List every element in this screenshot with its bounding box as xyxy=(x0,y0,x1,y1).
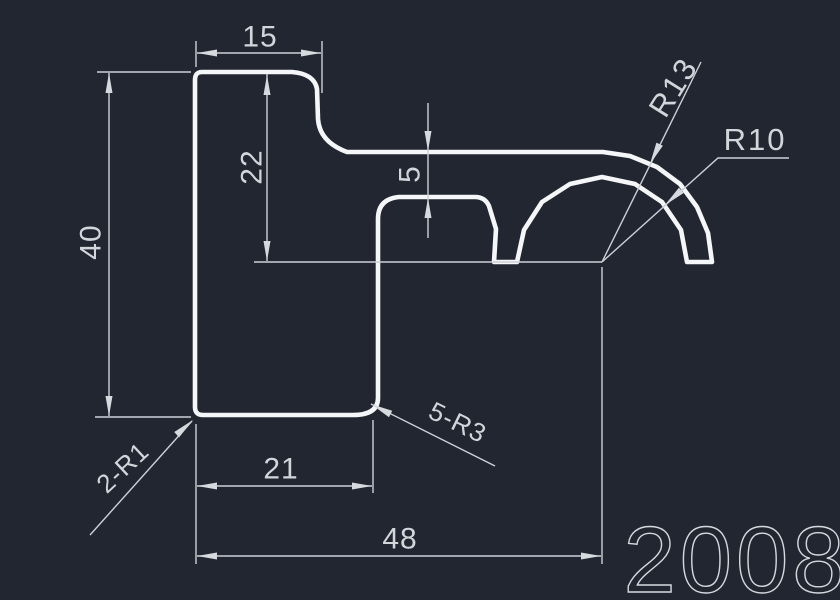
cad-viewport: 15 40 22 5 21 48 xyxy=(0,0,840,600)
dim-label-overall-height: 40 xyxy=(75,224,108,259)
part-number: 2008 xyxy=(623,507,840,600)
dim-label-top-width: 15 xyxy=(242,21,277,54)
dim-label-overall-width: 48 xyxy=(382,523,417,556)
dim-label-base-width: 21 xyxy=(263,453,298,486)
radius-label-r10: R10 xyxy=(724,122,787,157)
dim-label-upper-height: 22 xyxy=(236,149,269,184)
dim-label-rib-gap: 5 xyxy=(394,165,427,183)
cad-canvas: 15 40 22 5 21 48 xyxy=(0,0,840,600)
